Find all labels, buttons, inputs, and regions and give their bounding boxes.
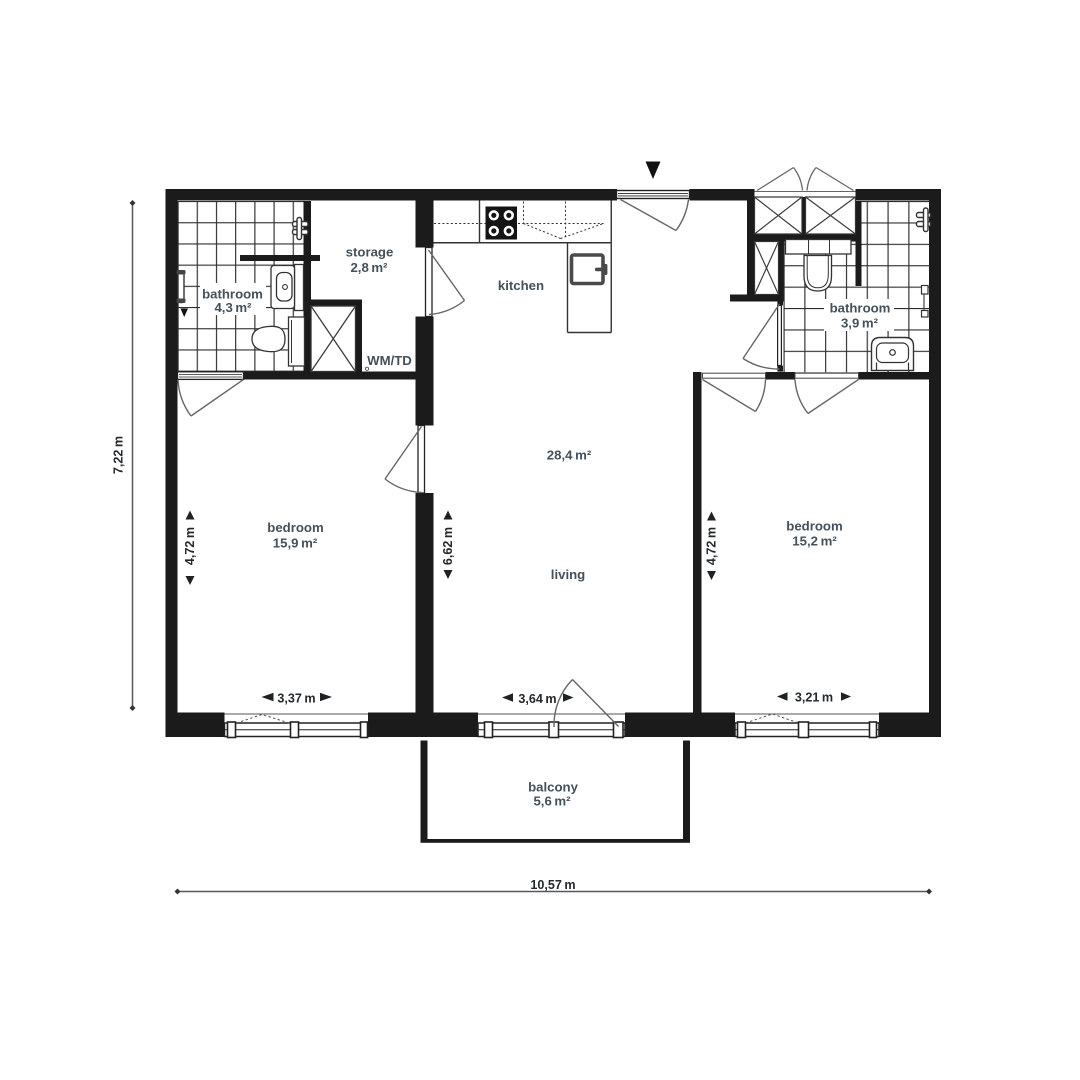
svg-text:WM/TD: WM/TD xyxy=(367,353,412,368)
svg-text:15,9 m²: 15,9 m² xyxy=(273,536,318,551)
svg-text:3,64 m: 3,64 m xyxy=(518,692,556,706)
svg-text:bathroom: bathroom xyxy=(830,301,891,316)
svg-text:28,4 m²: 28,4 m² xyxy=(547,448,592,463)
svg-text:balcony: balcony xyxy=(528,780,578,795)
svg-text:10,57 m: 10,57 m xyxy=(530,878,575,892)
svg-text:storage: storage xyxy=(346,245,394,260)
svg-text:bedroom: bedroom xyxy=(267,520,323,535)
svg-text:15,2 m²: 15,2 m² xyxy=(792,534,837,549)
svg-text:6,62 m: 6,62 m xyxy=(441,527,455,565)
svg-text:7,22 m: 7,22 m xyxy=(112,436,126,474)
svg-text:4,72 m: 4,72 m xyxy=(704,527,718,565)
svg-text:3,9 m²: 3,9 m² xyxy=(841,316,879,331)
svg-text:living: living xyxy=(551,567,585,582)
svg-text:2,8 m²: 2,8 m² xyxy=(350,260,388,275)
svg-text:5,6 m²: 5,6 m² xyxy=(533,794,571,809)
svg-text:4,3 m²: 4,3 m² xyxy=(214,300,252,315)
svg-text:bedroom: bedroom xyxy=(786,519,842,534)
svg-text:3,21 m: 3,21 m xyxy=(795,691,833,705)
svg-text:3,37 m: 3,37 m xyxy=(277,692,315,706)
svg-text:4,72 m: 4,72 m xyxy=(183,527,197,565)
svg-text:kitchen: kitchen xyxy=(498,278,544,293)
